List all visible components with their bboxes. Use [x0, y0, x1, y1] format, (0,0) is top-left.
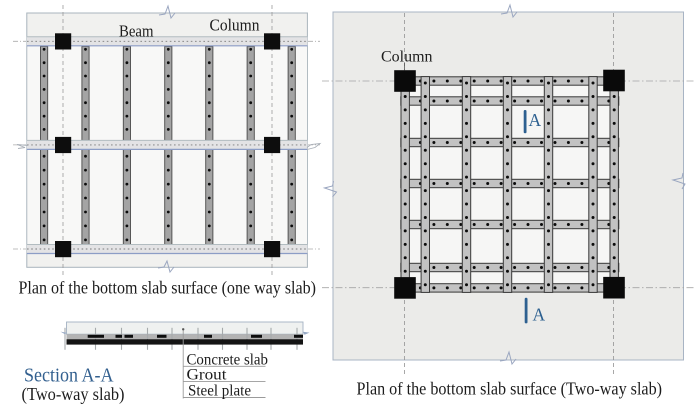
svg-text:A: A: [533, 304, 546, 324]
svg-text:Column: Column: [381, 49, 433, 66]
svg-text:Column: Column: [210, 16, 260, 35]
svg-text:Grout: Grout: [187, 366, 228, 383]
svg-text:Plan of the bottom slab surfac: Plan of the bottom slab surface (Two-way…: [357, 378, 663, 398]
svg-text:(Two-way slab): (Two-way slab): [22, 384, 125, 405]
svg-text:Steel plate: Steel plate: [188, 382, 251, 399]
svg-text:Beam: Beam: [119, 22, 154, 41]
svg-text:A: A: [529, 110, 542, 130]
svg-text:Plan of the bottom slab surfac: Plan of the bottom slab surface (one way…: [19, 277, 317, 297]
